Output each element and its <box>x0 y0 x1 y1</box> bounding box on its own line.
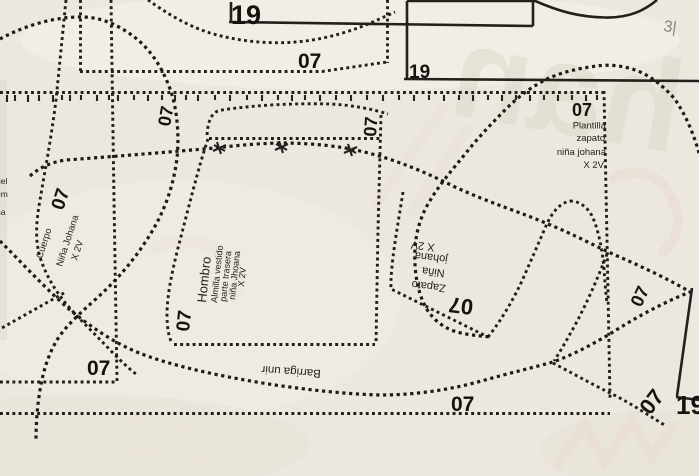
svg-text:07: 07 <box>173 309 196 332</box>
svg-text:07: 07 <box>360 116 381 137</box>
svg-text:07: 07 <box>154 104 177 127</box>
svg-text:Jo: Jo <box>114 379 225 476</box>
svg-text:07: 07 <box>572 100 592 120</box>
svg-text:19: 19 <box>409 62 430 83</box>
svg-text:07: 07 <box>447 292 474 320</box>
svg-text:07: 07 <box>298 50 321 73</box>
svg-text:07: 07 <box>87 357 110 380</box>
svg-text:07: 07 <box>451 393 474 416</box>
svg-text:na: na <box>0 207 6 217</box>
svg-text:X 2V: X 2V <box>583 160 604 171</box>
svg-text:niña johana: niña johana <box>557 147 607 158</box>
svg-text:del: del <box>0 176 7 186</box>
svg-text:19: 19 <box>676 390 699 420</box>
svg-text:zapato: zapato <box>576 133 605 144</box>
svg-text:X 2V: X 2V <box>236 267 248 287</box>
svg-text:3|: 3| <box>662 18 677 37</box>
svg-text:em: em <box>0 189 8 199</box>
svg-text:Plantilla: Plantilla <box>573 121 607 132</box>
svg-text:19: 19 <box>231 0 261 30</box>
